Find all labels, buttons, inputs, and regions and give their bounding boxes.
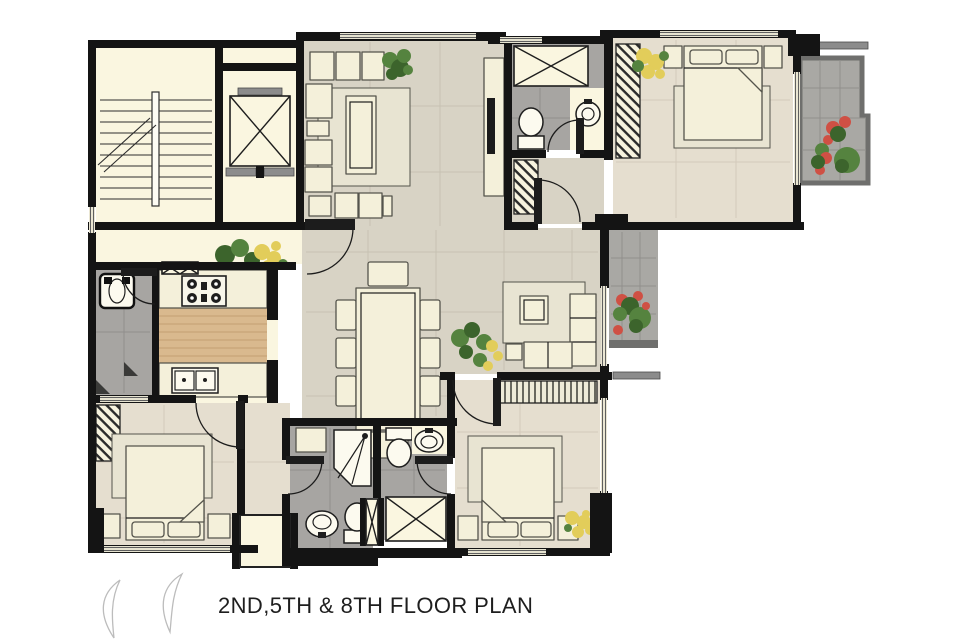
shaft-between-baths [360, 498, 384, 546]
bed-bottom-right [482, 448, 554, 540]
stair-divider [152, 92, 159, 206]
sitting-stool [506, 344, 522, 360]
sitting-sofa-vertical [570, 294, 596, 366]
kitchen-sink [172, 368, 218, 393]
elevator-door-sill-left [226, 168, 256, 176]
dining-table [356, 288, 420, 430]
toilet-top [518, 108, 544, 149]
window-bedroom-bl-bottom [104, 546, 230, 552]
window-bedroom-br-east [601, 398, 607, 493]
logo-leaves [103, 574, 182, 638]
nightstand-br-left [458, 516, 478, 540]
balcony-strip-ledge [613, 372, 660, 379]
window-stair-west [89, 207, 95, 233]
balcony-ledge-top [818, 42, 868, 49]
window-utility-bottom [100, 396, 148, 402]
window-bath-top [500, 37, 542, 43]
nightstand-bl-right [208, 514, 230, 538]
window-bedroom-tr-top [660, 31, 778, 37]
window-living-top [340, 33, 476, 39]
wardrobe-bottom-right [499, 381, 597, 403]
toilet-bath-b [386, 428, 412, 467]
elevator-door-post [256, 166, 264, 178]
bath-a-counter [296, 428, 326, 452]
shower-tub-bath-b [386, 497, 446, 541]
basin-bath-a [306, 511, 338, 538]
window-bedroom-br-bottom [468, 549, 546, 555]
balcony-strip-wall [609, 340, 658, 348]
elevator-door-sill-right [264, 168, 294, 176]
elevator-shaft-wall [223, 63, 297, 71]
bed-top-right [684, 46, 762, 140]
leaf-mark-1 [103, 580, 120, 638]
stove [182, 276, 226, 306]
nightstand-tr-right [764, 46, 782, 68]
window-bedroom-tr-east [794, 72, 800, 185]
elevator-panel [238, 88, 282, 95]
tv-screen [487, 98, 495, 154]
plan-title: 2ND,5TH & 8TH FLOOR PLAN [218, 593, 533, 619]
leaf-mark-2 [163, 574, 182, 632]
window-sitting-east [601, 286, 607, 366]
floor-plan-canvas: 2ND,5TH & 8TH FLOOR PLAN [0, 0, 960, 640]
floor-plan-drawing [0, 0, 960, 640]
bed-bottom-left [126, 446, 204, 540]
